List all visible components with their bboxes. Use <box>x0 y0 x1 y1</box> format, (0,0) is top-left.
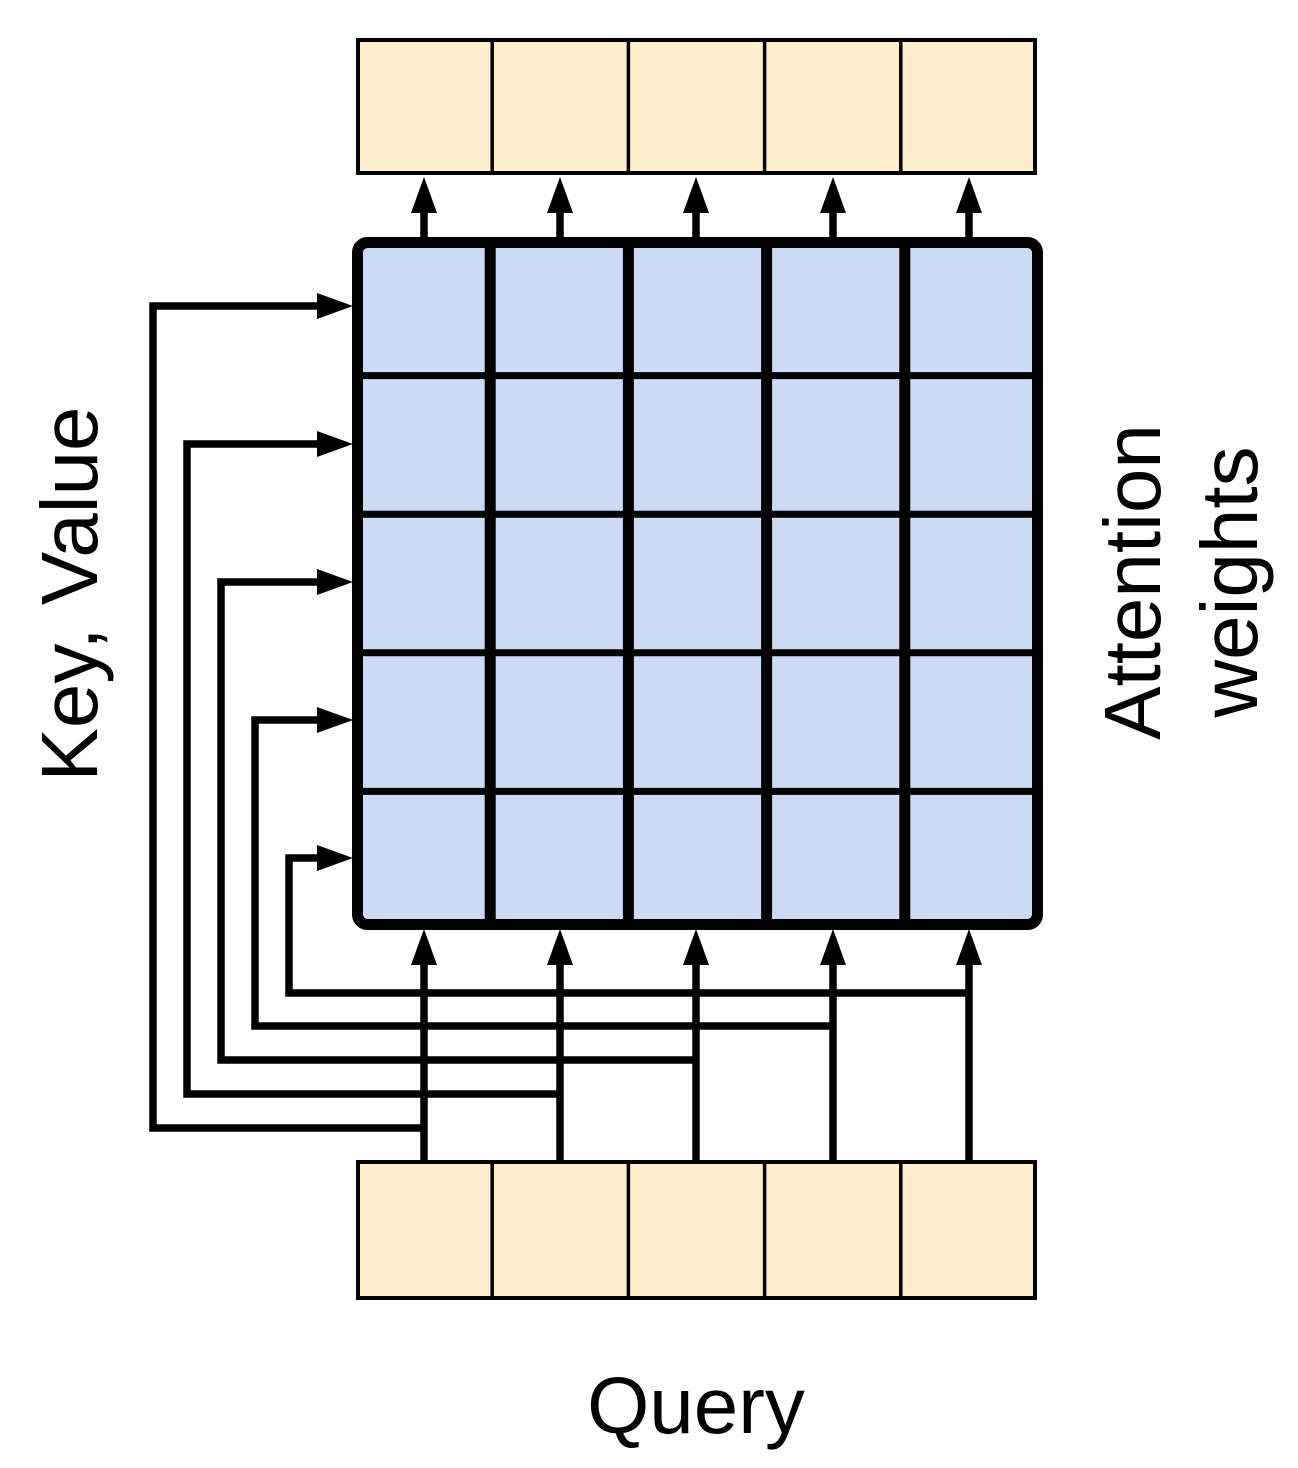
arrowhead-right-icon <box>317 707 353 733</box>
output-vector-box <box>358 40 1035 173</box>
arrowhead-right-icon <box>317 293 353 319</box>
query-to-matrix-arrows <box>411 929 982 1161</box>
matrix-to-output-arrow <box>956 177 982 239</box>
key-value-label: Key, Value <box>25 406 114 781</box>
arrowhead-up-icon <box>411 929 437 965</box>
arrowhead-up-icon <box>547 177 573 213</box>
query-to-matrix-arrow <box>956 929 982 1161</box>
arrowhead-up-icon <box>683 929 709 965</box>
matrix-to-output-arrow <box>683 177 709 239</box>
matrix-box <box>358 243 1038 925</box>
query-to-matrix-arrow <box>683 929 709 1161</box>
arrowhead-up-icon <box>411 177 437 213</box>
output-vector <box>358 40 1035 173</box>
query-vector <box>358 1162 1035 1298</box>
arrowhead-up-icon <box>547 929 573 965</box>
query-label: Query <box>587 1361 805 1450</box>
arrowhead-up-icon <box>820 929 846 965</box>
matrix-to-output-arrow <box>547 177 573 239</box>
attention-weights-label-line1: Attention <box>1088 424 1177 740</box>
query-vector-box <box>358 1162 1035 1298</box>
arrowhead-up-icon <box>683 177 709 213</box>
arrowhead-up-icon <box>956 929 982 965</box>
matrix-to-output-arrow <box>411 177 437 239</box>
query-to-matrix-arrow <box>547 929 573 1161</box>
arrowhead-right-icon <box>317 569 353 595</box>
attention-weights-matrix <box>358 243 1038 925</box>
matrix-to-output-arrows <box>411 177 982 239</box>
arrowhead-up-icon <box>956 177 982 213</box>
attention-weights-label-line2: weights <box>1185 446 1274 718</box>
arrowhead-up-icon <box>820 177 846 213</box>
query-to-matrix-arrow <box>820 929 846 1161</box>
arrowhead-right-icon <box>317 845 353 871</box>
matrix-to-output-arrow <box>820 177 846 239</box>
diagram-canvas: Key, Value Attention weights Query <box>0 0 1298 1468</box>
attention-diagram: Key, Value Attention weights Query <box>0 0 1298 1468</box>
arrowhead-right-icon <box>317 431 353 457</box>
